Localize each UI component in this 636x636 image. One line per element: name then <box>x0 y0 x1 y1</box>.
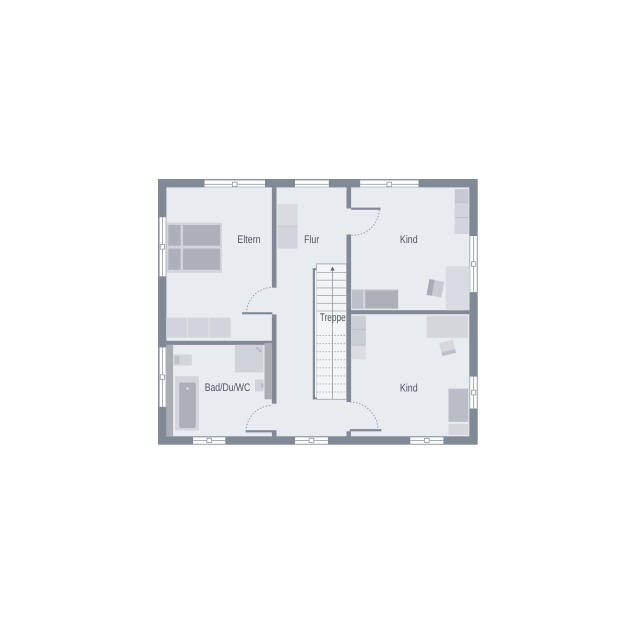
svg-text:Flur: Flur <box>304 234 319 246</box>
svg-text:Eltern: Eltern <box>237 234 260 246</box>
svg-text:Kind: Kind <box>400 234 418 246</box>
svg-text:Bad/Du/WC: Bad/Du/WC <box>205 382 251 394</box>
svg-text:Kind: Kind <box>400 382 418 394</box>
svg-text:Treppe: Treppe <box>320 312 346 324</box>
